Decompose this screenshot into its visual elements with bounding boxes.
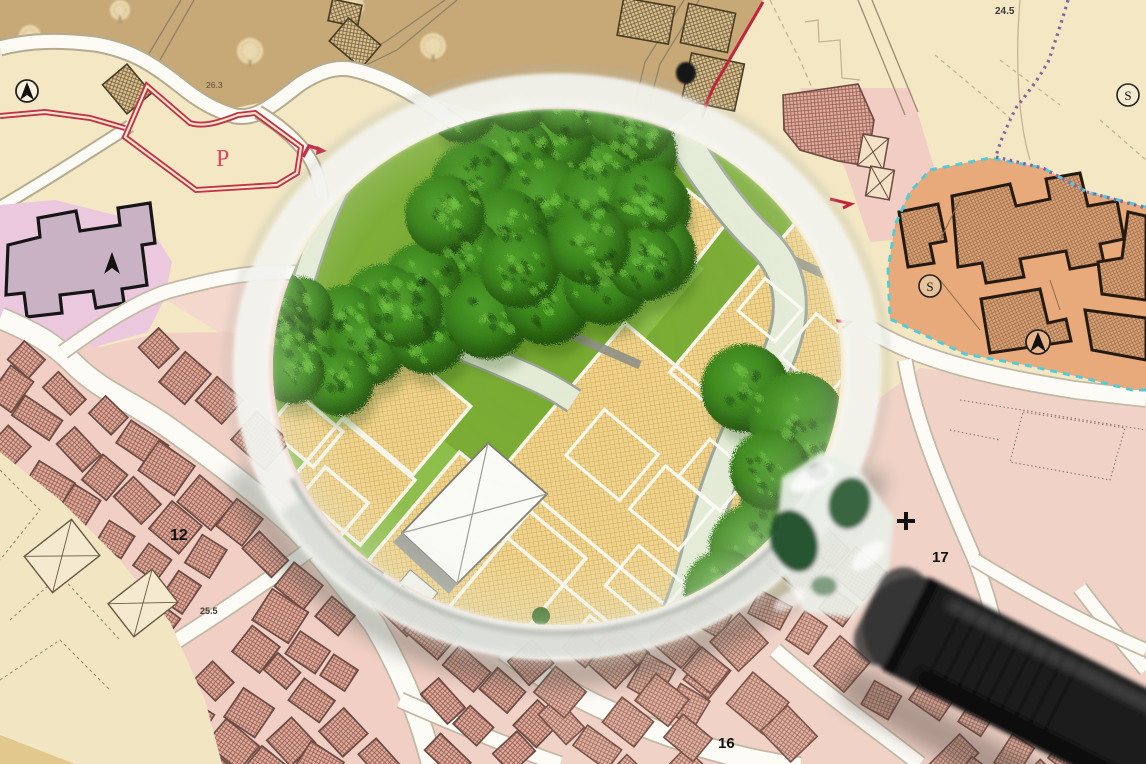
svg-text:17: 17 xyxy=(932,549,949,566)
svg-text:P: P xyxy=(216,146,229,172)
svg-text:S: S xyxy=(926,279,933,294)
svg-text:12: 12 xyxy=(170,527,188,544)
svg-text:S: S xyxy=(1124,88,1131,103)
svg-text:16: 16 xyxy=(718,735,735,752)
svg-text:26.3: 26.3 xyxy=(206,80,223,90)
svg-text:25.5: 25.5 xyxy=(200,606,218,616)
svg-text:24.5: 24.5 xyxy=(995,6,1015,17)
